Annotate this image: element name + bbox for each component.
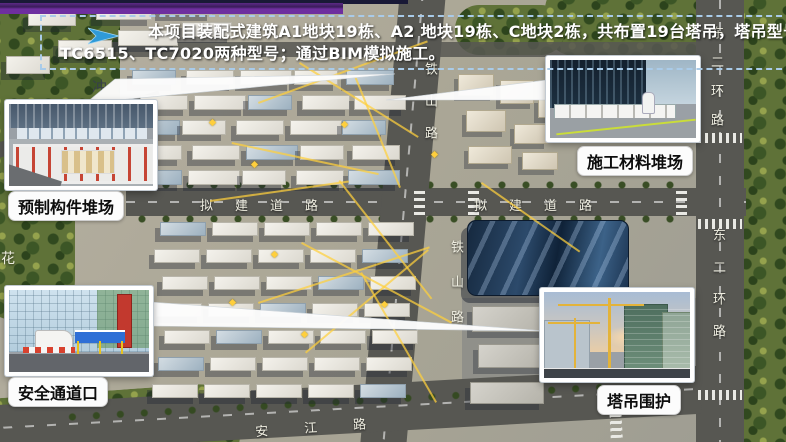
tower-crane-marker (209, 119, 216, 126)
material-yard-label: 施工材料堆场 (577, 146, 693, 176)
crane-radius-line (232, 142, 379, 175)
prefab-yard-label: 预制构件堆场 (8, 191, 124, 221)
banner-arrow-icon (88, 26, 120, 46)
photo-ground (9, 354, 149, 372)
top-bar-purple (0, 3, 343, 14)
photo-materials (61, 150, 115, 174)
slide: 拟建道路 拟建道路 铁山路 铁山路 东二环路 东二环路 安江路 花 冲 预制构件… (0, 0, 786, 442)
crane-radius-line (299, 62, 419, 137)
crane-enclosure-label: 塔吊围护 (597, 385, 681, 415)
photo-crane-mast (574, 318, 576, 370)
photo-tower-grid (624, 304, 690, 370)
crane-radius-line (339, 180, 433, 299)
crane-radius-line (481, 182, 580, 252)
project-description-banner: 本项目装配式建筑A1地块19栋、A2 地块19栋、C地块2栋，共布置19台塔吊，… (40, 15, 786, 70)
photo-crane-jib (548, 322, 600, 324)
photo-ground (544, 368, 690, 379)
photo-silo (642, 92, 655, 114)
banner-text-line2: TC6515、TC7020两种型号；通过BIM模拟施工。 (42, 43, 786, 65)
tower-crane-marker (229, 299, 236, 306)
photo-barrier (23, 347, 75, 353)
crane-radius-line (210, 181, 349, 202)
photo-crane-mast (608, 298, 611, 370)
safety-passage-photo (5, 286, 153, 376)
tower-crane-marker (251, 161, 258, 168)
tower-crane-marker (301, 331, 308, 338)
prefab-yard-photo (5, 100, 157, 190)
crane-enclosure-photo (540, 288, 694, 382)
crane-radius-line (258, 246, 430, 303)
tower-crane-marker (341, 121, 348, 128)
tower-crane-marker (271, 251, 278, 258)
banner-text-line1: 本项目装配式建筑A1地块19栋、A2 地块19栋、C地块2栋，共布置19台塔吊，… (42, 17, 786, 43)
photo-buildings-left (544, 320, 590, 370)
safety-passage-label: 安全通道口 (8, 377, 108, 407)
photo-frames (17, 128, 147, 139)
tower-crane-marker (431, 151, 438, 158)
photo-crane-jib (558, 304, 644, 306)
crane-radius-line (301, 242, 452, 323)
photo-buildings (9, 104, 153, 128)
